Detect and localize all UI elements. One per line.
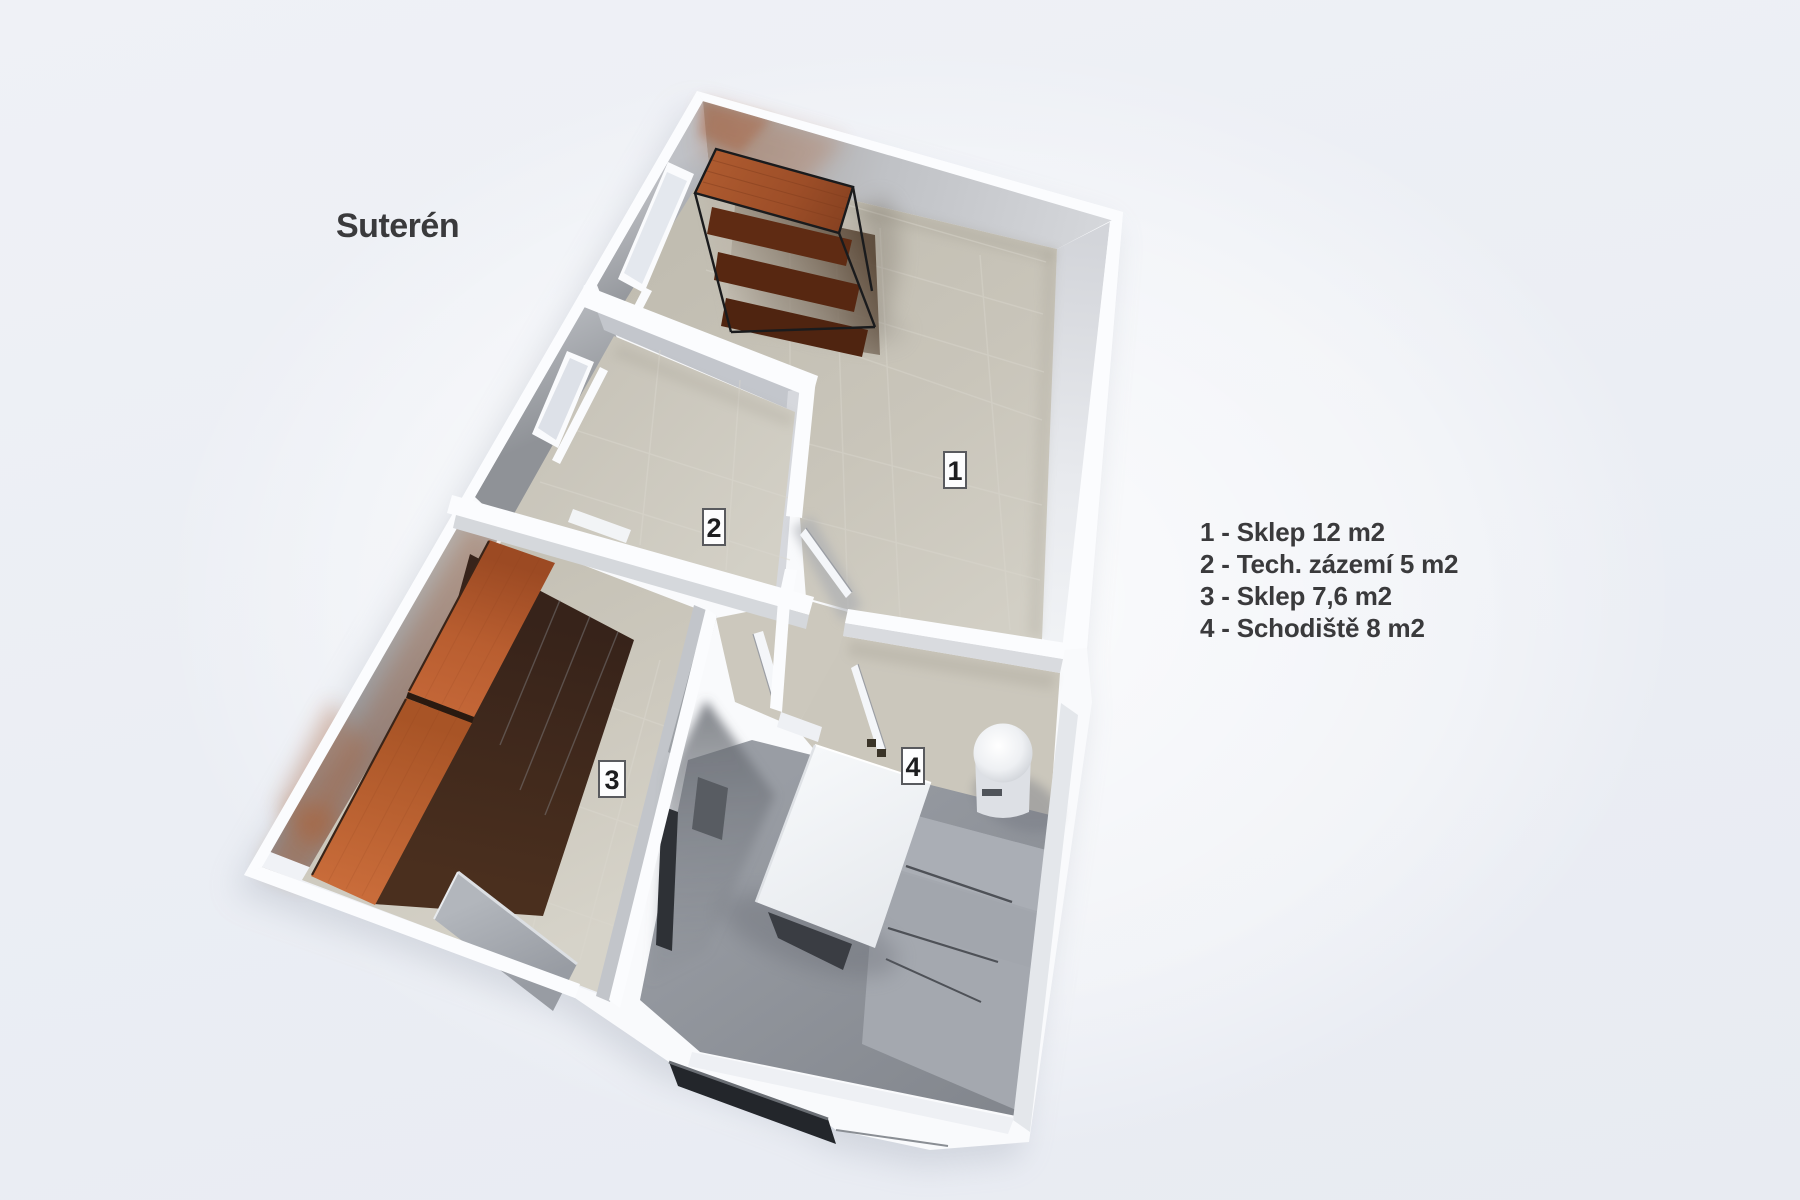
svg-text:2: 2 bbox=[706, 513, 721, 543]
svg-text:1: 1 bbox=[947, 456, 962, 486]
svg-text:3: 3 bbox=[604, 765, 619, 795]
svg-text:4: 4 bbox=[905, 752, 920, 782]
